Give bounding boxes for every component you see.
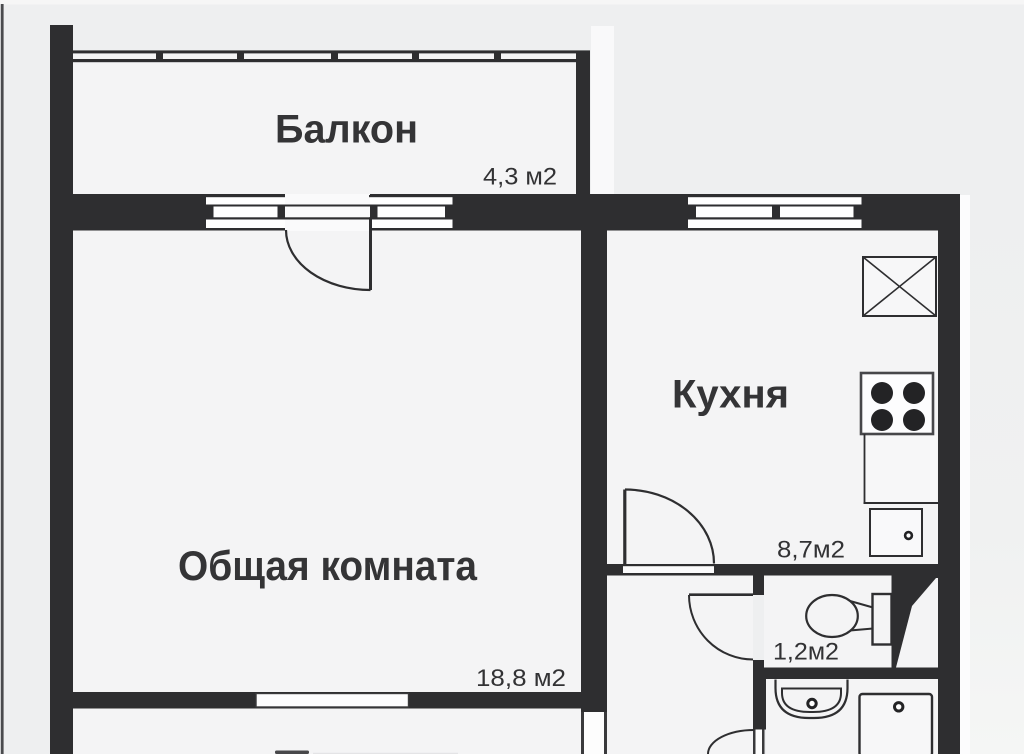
svg-text:8,7м2: 8,7м2 xyxy=(777,537,845,564)
svg-text:1,2м2: 1,2м2 xyxy=(773,639,839,666)
svg-text:Балкон: Балкон xyxy=(275,108,418,152)
svg-text:Общая комната: Общая комната xyxy=(178,542,478,589)
svg-text:4,3 м2: 4,3 м2 xyxy=(483,164,557,191)
svg-text:Кухня: Кухня xyxy=(672,373,789,417)
svg-text:18,8 м2: 18,8 м2 xyxy=(476,665,566,692)
